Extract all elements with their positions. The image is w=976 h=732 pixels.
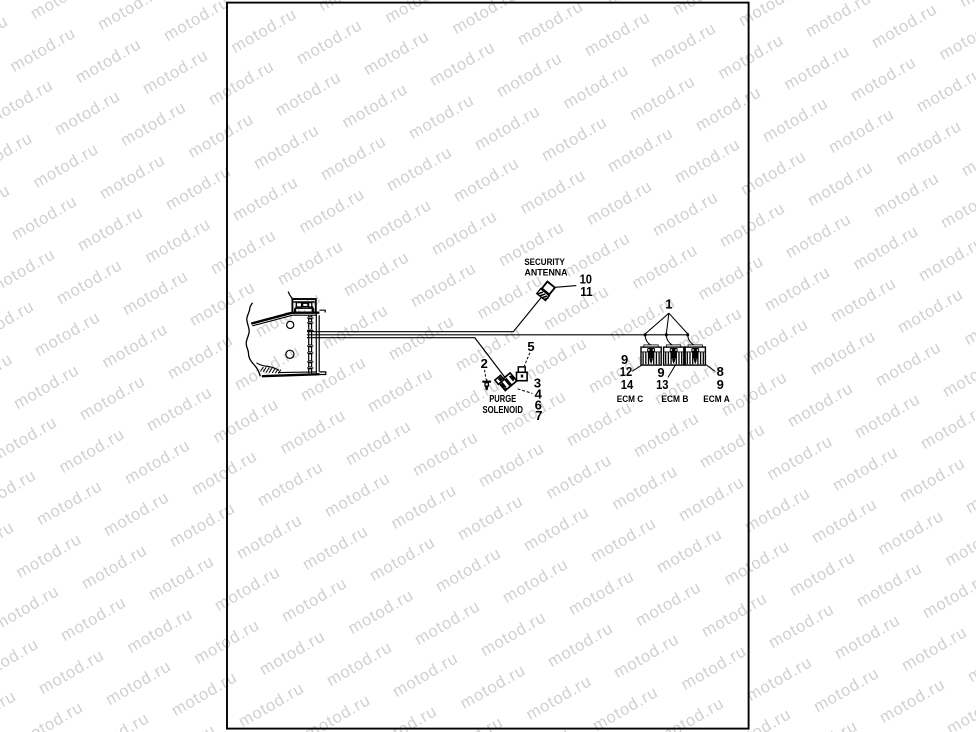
- svg-text:14: 14: [621, 377, 634, 392]
- svg-text:SOLENOID: SOLENOID: [482, 405, 523, 416]
- svg-text:5: 5: [527, 339, 534, 354]
- svg-text:PURGE: PURGE: [489, 394, 516, 405]
- svg-text:2: 2: [481, 356, 488, 371]
- svg-text:ANTENNA: ANTENNA: [525, 268, 568, 279]
- svg-text:11: 11: [580, 284, 592, 299]
- svg-text:13: 13: [656, 377, 668, 392]
- svg-text:ECM B: ECM B: [661, 394, 688, 405]
- svg-text:ECM A: ECM A: [703, 394, 730, 405]
- svg-text:SECURITY: SECURITY: [524, 257, 565, 268]
- svg-text:9: 9: [717, 377, 724, 392]
- svg-text:1: 1: [665, 297, 672, 312]
- svg-text:ECM C: ECM C: [617, 394, 644, 405]
- svg-text:7: 7: [535, 408, 542, 423]
